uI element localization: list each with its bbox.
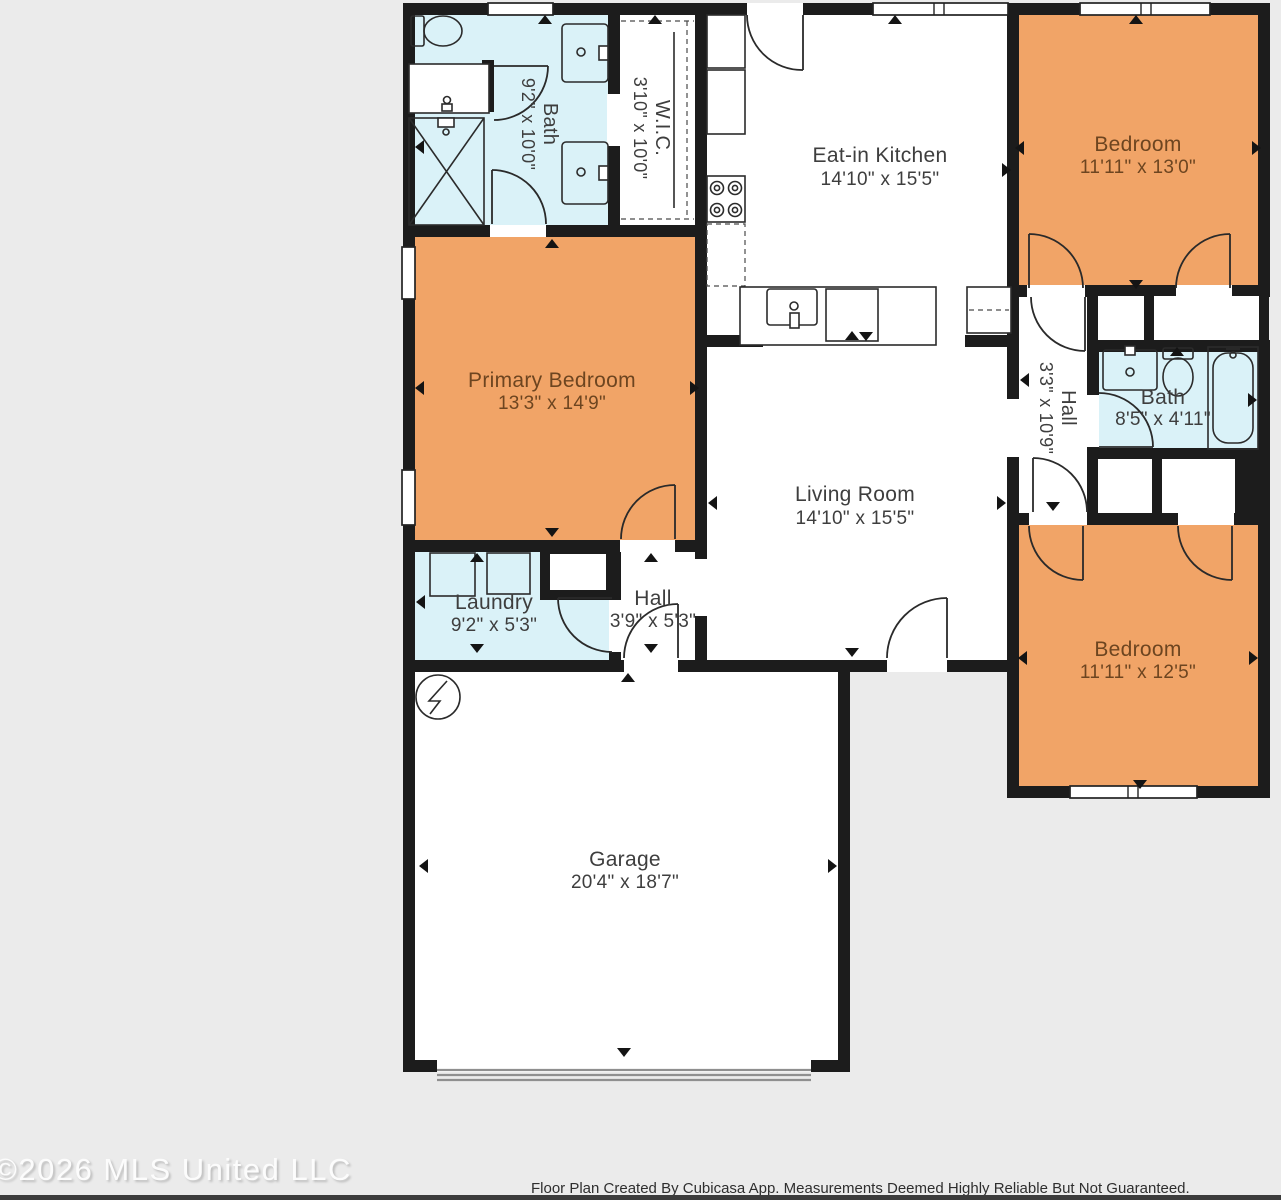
- room-name-label: Eat-in Kitchen: [813, 144, 948, 167]
- window-primary-2: [402, 470, 415, 525]
- doorway-bath2: [1087, 395, 1099, 447]
- doorway-bedroom-tr: [1027, 285, 1085, 297]
- doorway-hall-garage: [624, 660, 678, 672]
- doorway-closet-tr: [1176, 285, 1232, 297]
- label-laundry: Laundry 9'2" x 5'3": [451, 591, 537, 636]
- doorway-front-entry: [887, 660, 947, 672]
- bottom-edge-strip: [0, 1195, 1281, 1200]
- room-dims-label: 3'10" x 10'0": [630, 77, 650, 180]
- doorway-bedroom-br: [1029, 513, 1087, 525]
- room-name-label: Bedroom: [1094, 133, 1181, 156]
- room-name-label: Living Room: [795, 483, 915, 506]
- label-bedroom-bottom-right: Bedroom 11'11" x 12'5": [1080, 638, 1196, 683]
- opening-hall-living: [694, 559, 708, 616]
- room-name-label: Laundry: [455, 591, 533, 614]
- doorway-wic: [607, 94, 621, 146]
- room-name-label: Hall: [634, 587, 671, 610]
- cabinet-icon: [707, 70, 745, 134]
- doorway-primary-bedroom: [620, 540, 675, 552]
- room-dims-label: 3'3" x 10'9": [1036, 362, 1056, 454]
- doorway-kitchen-entry: [747, 3, 803, 15]
- room-name-label: Bedroom: [1094, 638, 1181, 661]
- fridge-icon: [707, 15, 745, 68]
- room-name-label: Bath: [1141, 386, 1185, 409]
- room-name-label: W.I.C.: [651, 100, 673, 156]
- room-dims-label: 9'2" x 10'0": [518, 78, 538, 170]
- pantry-cabinet-icon: [967, 287, 1011, 333]
- room-dims-label: 9'2" x 5'3": [451, 615, 537, 636]
- mls-watermark: ©2026 MLS United LLC: [0, 1152, 352, 1188]
- kitchen-peninsula: [740, 287, 936, 345]
- closet-top-a: [1093, 291, 1149, 346]
- floor-plan-page: Bath 9'2" x 10'0" W.I.C. 3'10" x 10'0" E…: [0, 0, 1281, 1200]
- doorway-bath1: [490, 225, 546, 237]
- window-bedroom-br: [1070, 786, 1197, 798]
- window-bedroom-tr: [1080, 3, 1210, 15]
- window-bath1: [488, 3, 553, 15]
- opening-living-hall: [1006, 399, 1020, 457]
- stove-icon: [707, 176, 745, 222]
- room-dims-label: 3'9" x 5'3": [610, 611, 696, 632]
- window-kitchen: [873, 3, 1008, 15]
- room-dims-label: 14'10" x 15'5": [796, 508, 915, 529]
- vanity-icon: [409, 64, 489, 113]
- room-dims-label: 11'11" x 12'5": [1080, 662, 1196, 683]
- room-dims-label: 14'10" x 15'5": [821, 169, 940, 190]
- label-bedroom-top-right: Bedroom 11'11" x 13'0": [1080, 133, 1196, 178]
- window-primary-1: [402, 247, 415, 299]
- room-dims-label: 20'4" x 18'7": [571, 872, 679, 893]
- closet-top-b: [1149, 291, 1264, 346]
- closet-bottom-b: [1157, 454, 1241, 519]
- room-name-label: Bath: [539, 103, 561, 145]
- room-name-label: Garage: [589, 848, 661, 871]
- room-name-label: Hall: [1057, 390, 1079, 426]
- room-dims-label: 11'11" x 13'0": [1080, 157, 1196, 178]
- closet-bottom-a: [1093, 454, 1157, 519]
- counter-icon: [740, 287, 936, 345]
- room-name-label: Primary Bedroom: [468, 369, 636, 392]
- floor-plan-canvas: Bath 9'2" x 10'0" W.I.C. 3'10" x 10'0" E…: [0, 0, 1281, 1200]
- room-dims-label: 13'3" x 14'9": [498, 393, 606, 414]
- closet-laundry: [545, 549, 611, 595]
- doorway-closet-br: [1178, 513, 1234, 525]
- room-dims-label: 8'5" x 4'11": [1115, 409, 1211, 430]
